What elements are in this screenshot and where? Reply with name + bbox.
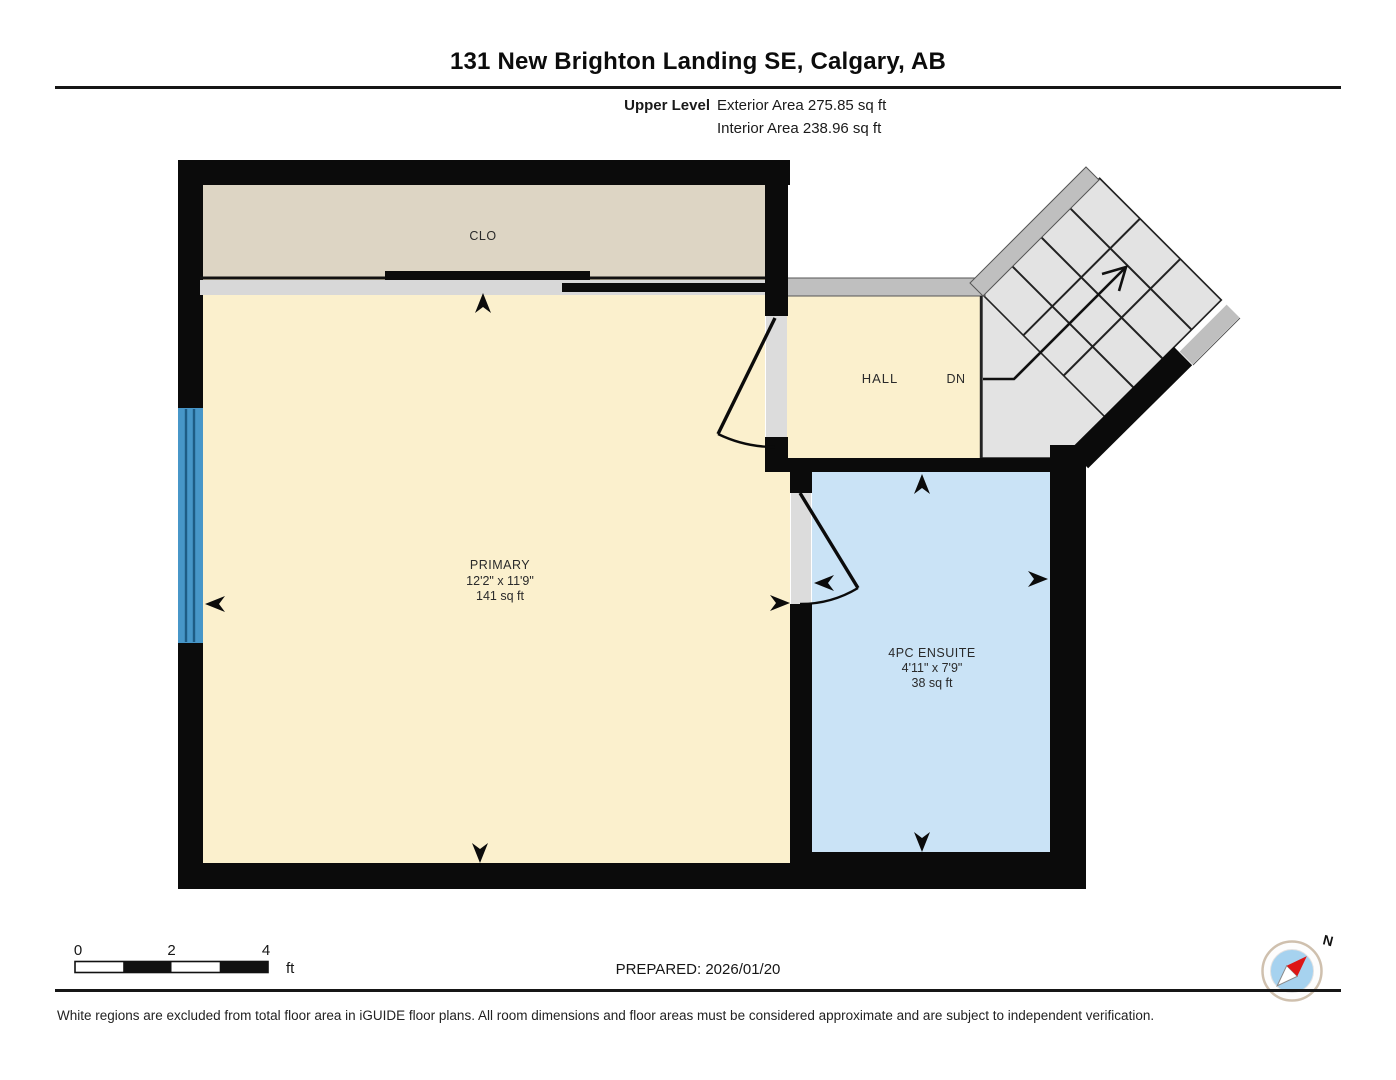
stairs-floor — [982, 178, 1221, 458]
hall-top-gray-wall — [787, 278, 985, 296]
floor-plan-page: 131 New Brighton Landing SE, Calgary, AB… — [0, 0, 1396, 1080]
primary-dimensions: 12'2" x 11'9" — [466, 574, 534, 588]
ensuite-area: 38 sq ft — [912, 676, 954, 690]
stairs-down-label: DN — [946, 372, 965, 386]
hall-label: HALL — [862, 371, 899, 386]
footer-divider — [55, 989, 1341, 992]
ensuite-dimensions: 4'11" x 7'9" — [902, 661, 963, 675]
scale-tick-0: 0 — [74, 942, 82, 959]
closet-label: CLO — [469, 229, 496, 243]
floor-plan-drawing: CLO HALL DN PRIMARY 12'2" x 11'9" 141 sq… — [0, 0, 1396, 1080]
prepared-date-text: PREPARED: 2026/01/20 — [0, 961, 1396, 978]
window — [178, 408, 203, 643]
compass-north-label: N — [1321, 931, 1335, 949]
disclaimer-text: White regions are excluded from total fl… — [57, 1008, 1357, 1023]
ensuite-label: 4PC ENSUITE — [888, 646, 975, 660]
primary-label: PRIMARY — [470, 558, 530, 572]
scale-tick-2: 2 — [167, 942, 175, 959]
primary-area: 141 sq ft — [476, 589, 524, 603]
scale-tick-4: 4 — [262, 942, 270, 959]
